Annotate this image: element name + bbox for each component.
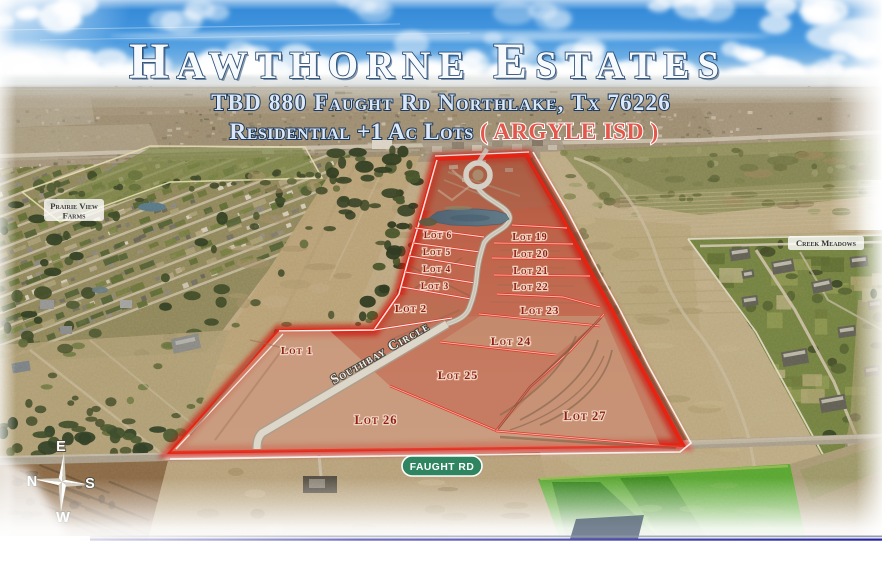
- svg-text:Lot 5: Lot 5: [423, 248, 452, 258]
- svg-text:Lot 24: Lot 24: [491, 334, 532, 348]
- svg-text:Lot 4: Lot 4: [423, 265, 452, 275]
- svg-text:Lot 6: Lot 6: [424, 231, 453, 241]
- svg-text:Lot 22: Lot 22: [513, 282, 548, 293]
- svg-text:Farms: Farms: [62, 211, 86, 221]
- svg-text:Lot 2: Lot 2: [395, 303, 427, 315]
- svg-text:Lot 3: Lot 3: [421, 282, 450, 292]
- svg-text:Lot 21: Lot 21: [513, 266, 548, 277]
- svg-text:Residential +1 Ac Lots ( ARGYL: Residential +1 Ac Lots ( ARGYLE ISD ): [229, 119, 658, 145]
- svg-text:E: E: [56, 439, 66, 455]
- svg-text:Lot 20: Lot 20: [513, 249, 548, 260]
- svg-text:Lot 19: Lot 19: [512, 232, 547, 243]
- svg-text:Lot 27: Lot 27: [564, 409, 607, 423]
- svg-text:FAUGHT RD: FAUGHT RD: [410, 462, 475, 473]
- svg-text:Lot 26: Lot 26: [355, 413, 398, 427]
- svg-text:Prairie View: Prairie View: [50, 201, 98, 211]
- svg-text:Lot 25: Lot 25: [438, 368, 479, 382]
- svg-text:Lot 1: Lot 1: [281, 345, 313, 357]
- svg-text:Lot 23: Lot 23: [521, 305, 560, 317]
- svg-text:TBD 880 Faught Rd Northlake, T: TBD 880 Faught Rd Northlake, Tx 76226: [211, 90, 671, 115]
- svg-text:Creek Meadows: Creek Meadows: [796, 238, 857, 248]
